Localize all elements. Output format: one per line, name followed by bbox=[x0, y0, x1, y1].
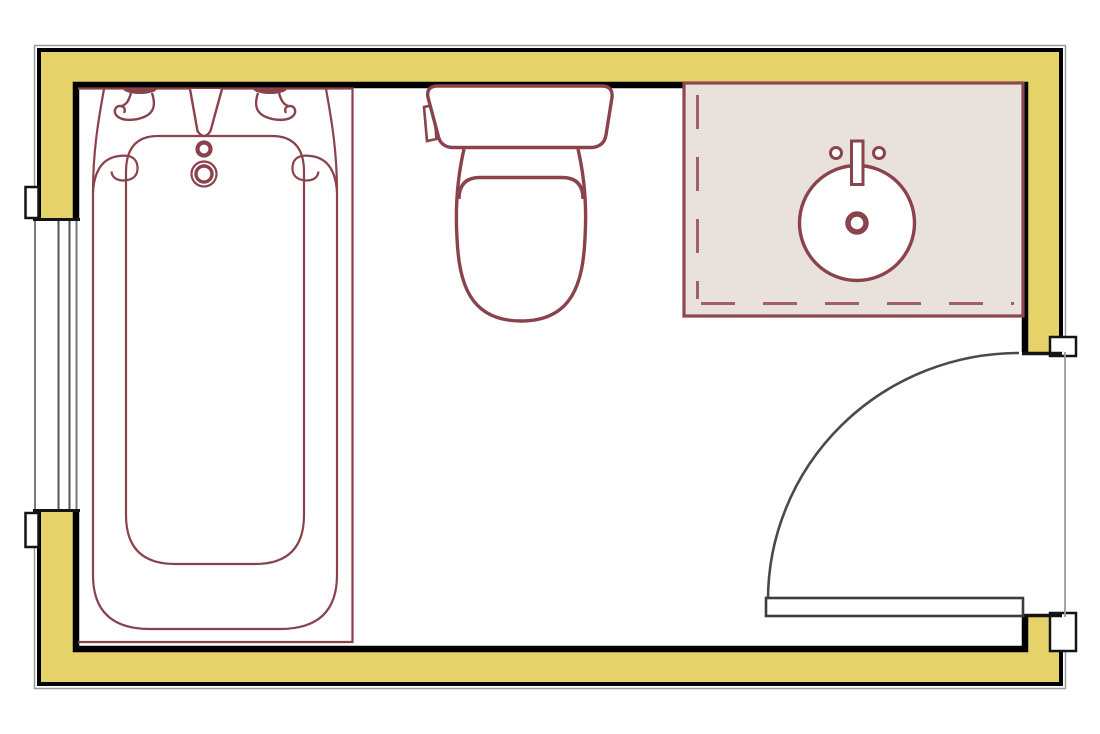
tub-rim-scroll-right bbox=[292, 156, 337, 192]
toilet[interactable] bbox=[424, 86, 612, 321]
entry-door[interactable] bbox=[766, 337, 1080, 651]
toilet-bowl bbox=[456, 149, 585, 321]
sink-faucet bbox=[852, 141, 864, 185]
door-leaf[interactable] bbox=[766, 598, 1023, 616]
door-jamb-bottom bbox=[1050, 613, 1076, 651]
tub-inner-basin bbox=[126, 136, 304, 564]
tub-handle-left-stem bbox=[122, 93, 131, 106]
tub-handle-right-stem bbox=[279, 93, 288, 106]
bathtub[interactable] bbox=[78, 89, 353, 643]
tub-rim-scroll-left bbox=[93, 156, 138, 192]
toilet-tank bbox=[428, 86, 612, 148]
sink-drain bbox=[848, 214, 866, 232]
vanity[interactable] bbox=[684, 83, 1023, 316]
floor-plan-canvas bbox=[0, 0, 1100, 734]
tub-spout-tip bbox=[198, 143, 211, 156]
faucet-handle-right bbox=[874, 148, 885, 159]
door-swing-arc bbox=[768, 353, 1019, 600]
door-opening bbox=[1021, 352, 1080, 617]
window[interactable] bbox=[26, 187, 82, 547]
window-jamb-top bbox=[26, 187, 39, 218]
faucet-handle-left bbox=[831, 148, 842, 159]
tub-handle-right bbox=[256, 93, 295, 120]
tub-handle-left bbox=[115, 93, 154, 120]
tub-spout bbox=[190, 89, 222, 136]
window-jamb-bottom bbox=[26, 513, 39, 547]
floor-plan bbox=[0, 0, 1100, 734]
tub-drain bbox=[196, 166, 212, 182]
